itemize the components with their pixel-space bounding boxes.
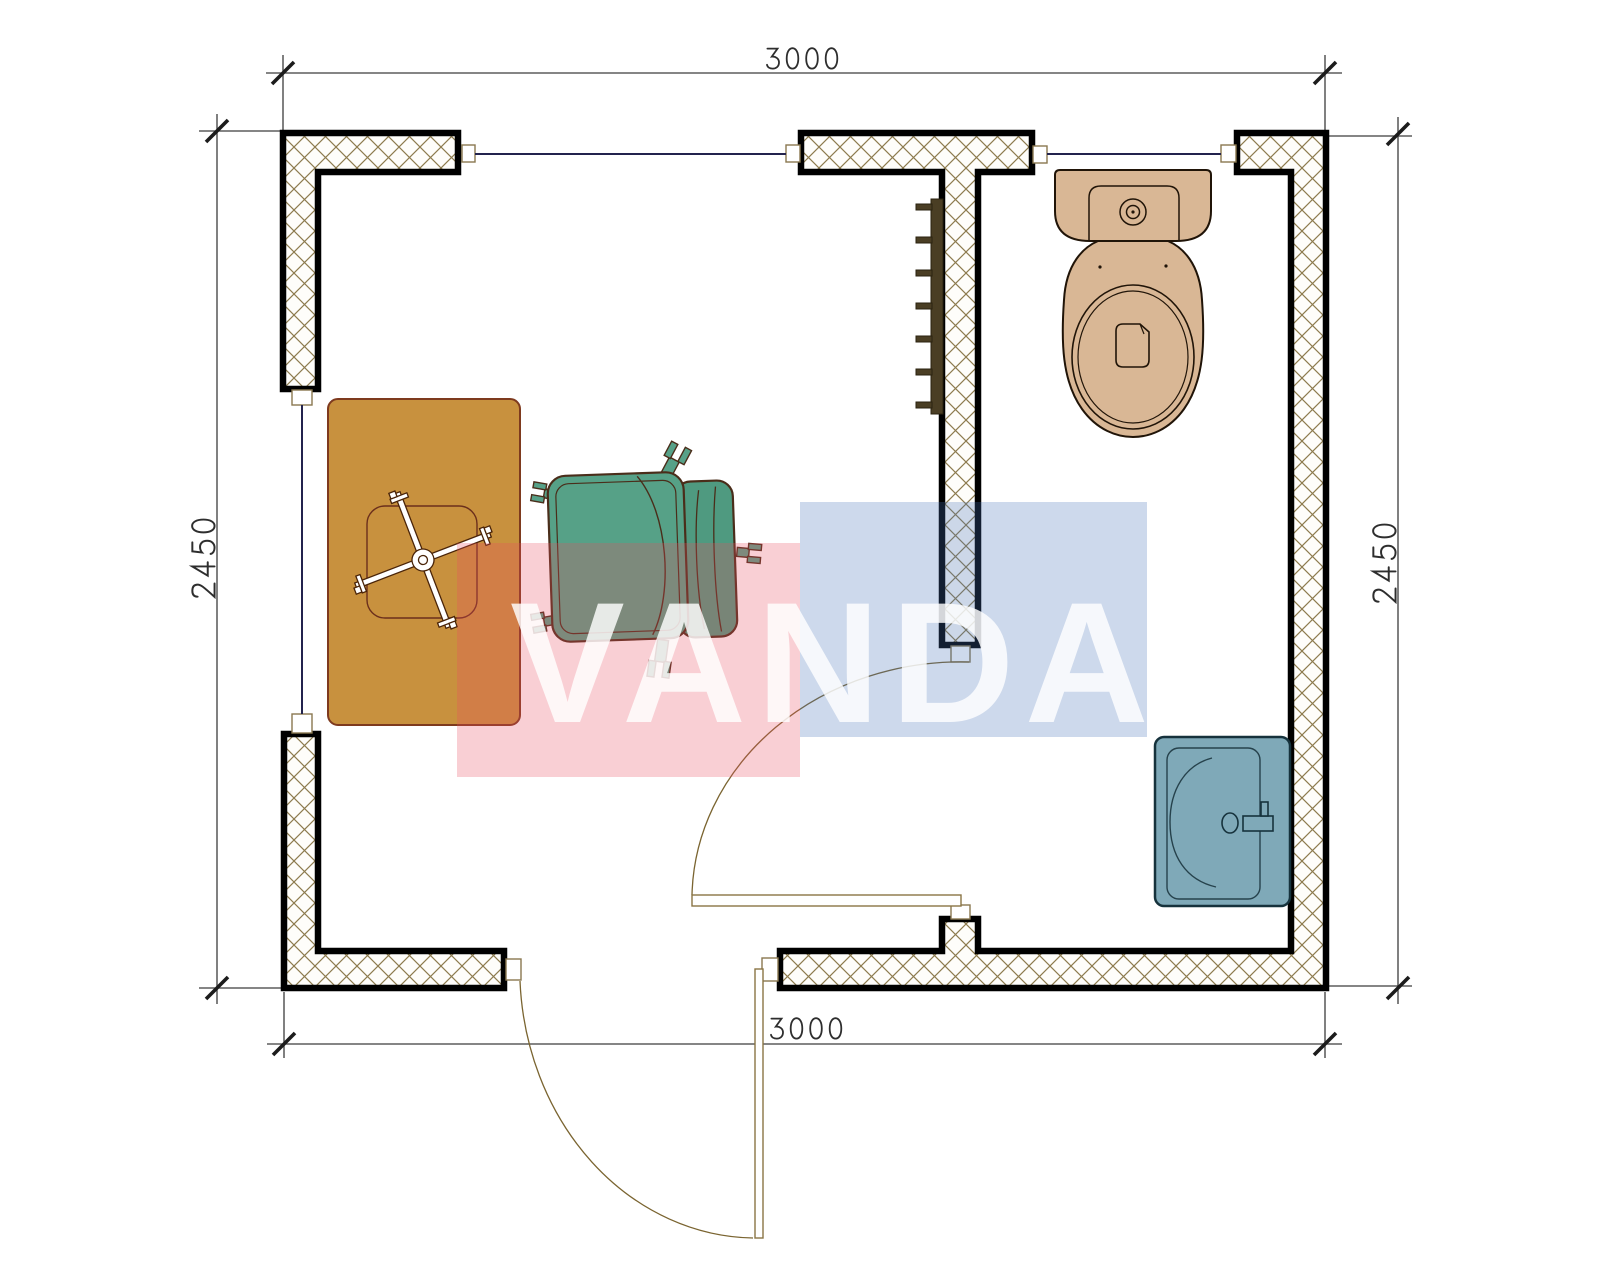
svg-text:VANDA: VANDA [510, 567, 1159, 759]
